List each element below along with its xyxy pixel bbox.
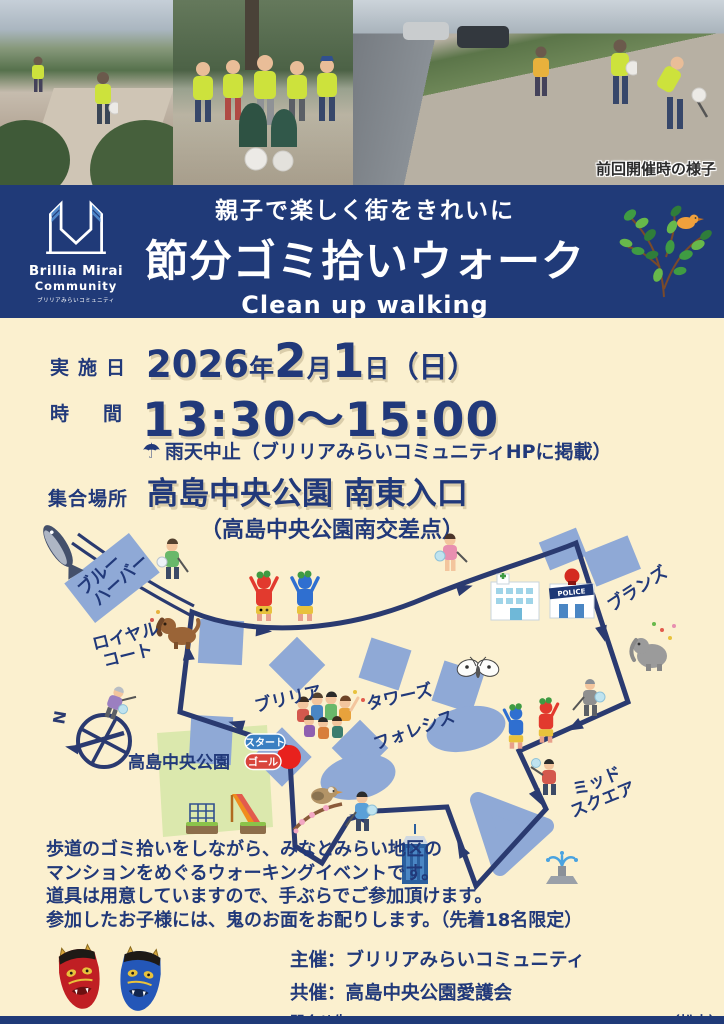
butterfly-icon	[455, 657, 501, 679]
photo-caption: 前回開催時の様子	[596, 158, 716, 179]
umbrella-icon: ☂	[142, 439, 161, 463]
elephant-icon	[631, 622, 676, 671]
event-title: 節分ゴミ拾いウォーク	[130, 227, 600, 289]
girl-with-bag-icon	[435, 534, 467, 572]
volunteer-figure	[603, 38, 637, 108]
trash-picker-person-icon	[157, 539, 188, 580]
leaf-branch-icon	[614, 197, 714, 302]
photo-group-with-bags	[173, 0, 353, 185]
rain-note-text: 雨天中止（ブリリアみらいコミュニティHPに掲載）	[165, 441, 612, 463]
start-badge: スタート	[245, 734, 285, 750]
event-description: 歩道のゴミ拾いをしながら、みなとみらい地区の マンションをめぐるウォーキングイベ…	[46, 838, 582, 932]
date-weekday: （日）	[389, 344, 476, 386]
title-banner: Brillia Mirai Community ブリリアみらいコミュニティ 親子…	[0, 185, 724, 318]
blue-oni-icon	[292, 571, 318, 622]
brillia-mirai-logo: Brillia Mirai Community ブリリアみらいコミュニティ	[16, 193, 136, 304]
co-organizer-line: 共催：高島中央公園愛護会	[290, 979, 723, 1005]
oni-masks	[52, 936, 182, 1020]
bottom-navy-strip	[0, 1016, 724, 1024]
bird-on-branch-icon	[294, 787, 344, 834]
volunteer-figure	[88, 70, 118, 130]
volunteer-group	[181, 55, 351, 180]
goal-badge: ゴール	[245, 754, 281, 770]
photo-strip: 前回開催時の様子	[0, 0, 724, 185]
banner-titles: 親子で楽しく街をきれいに 節分ゴミ拾いウォーク Clean up walking	[130, 191, 600, 319]
red-oni-mask-icon	[56, 944, 104, 1012]
compass-icon: N	[49, 706, 139, 776]
m-building-logo-icon	[44, 193, 108, 257]
date-year-suffix: 年	[249, 349, 274, 385]
trash-picker-person-gray-icon	[573, 679, 605, 716]
meeting-place-label: 集合場所	[48, 484, 128, 511]
oni-pair-top-icon	[251, 571, 318, 622]
description-line: マンションをめぐるウォーキングイベントです。	[46, 862, 582, 886]
label-takashima-park: 高島中央公園	[128, 752, 230, 773]
hospital-icon	[491, 573, 539, 620]
logo-text-line3: ブリリアみらいコミュニティ	[16, 296, 136, 304]
date-year: 2026	[146, 343, 249, 386]
photo-sidewalk-cleaning-right: 前回開催時の様子	[353, 0, 724, 185]
volunteer-figure	[528, 45, 554, 97]
bending-volunteer-figure	[653, 55, 713, 135]
event-flyer: 前回開催時の様子 Brillia Mirai Community ブリリアみらい…	[0, 0, 724, 1024]
date-label: 実施日	[50, 353, 134, 380]
small-bird-icon	[677, 215, 704, 230]
description-line: 参加したお子様には、鬼のお面をお配りします。（先着18名限定）	[46, 909, 582, 933]
car	[403, 22, 449, 40]
car	[457, 26, 509, 48]
description-line: 道具は用意していますので、手ぶらでご参加頂けます。	[46, 885, 582, 909]
date-day-suffix: 日	[364, 349, 389, 385]
start-badge-label: スタート	[245, 737, 285, 749]
date-month-suffix: 月	[307, 349, 332, 385]
meeting-place: 高島中央公園 南東入口	[147, 468, 468, 513]
compass-north-label: N	[49, 709, 70, 725]
time-label: 時間	[50, 399, 156, 426]
red-oni-icon	[251, 571, 277, 622]
rain-cancellation-note: ☂雨天中止（ブリリアみらいコミュニティHPに掲載）	[142, 437, 612, 464]
oni-pair-right-icon	[504, 697, 557, 748]
logo-text-line2: Community	[16, 279, 136, 293]
blue-oni-mask-icon	[117, 946, 163, 1013]
volunteer-figure	[28, 55, 48, 95]
description-line: 歩道のゴミ拾いをしながら、みなとみらい地区の	[46, 838, 582, 862]
photo-street-cleaning-left	[0, 0, 173, 185]
organizer-line: 主催：ブリリアみらいコミュニティ	[290, 946, 723, 972]
goal-badge-label: ゴール	[248, 756, 278, 769]
tuna-fish-icon	[38, 521, 84, 580]
banner-tagline: 親子で楽しく街をきれいに	[130, 191, 600, 225]
organizer-info: 主催：ブリリアみらいコミュニティ 共催：高島中央公園愛護会 問合せ先：info@…	[290, 946, 723, 1024]
event-subtitle-english: Clean up walking	[130, 291, 600, 319]
blue-oni-icon	[504, 703, 523, 748]
logo-text-line1: Brillia Mirai	[16, 263, 136, 279]
